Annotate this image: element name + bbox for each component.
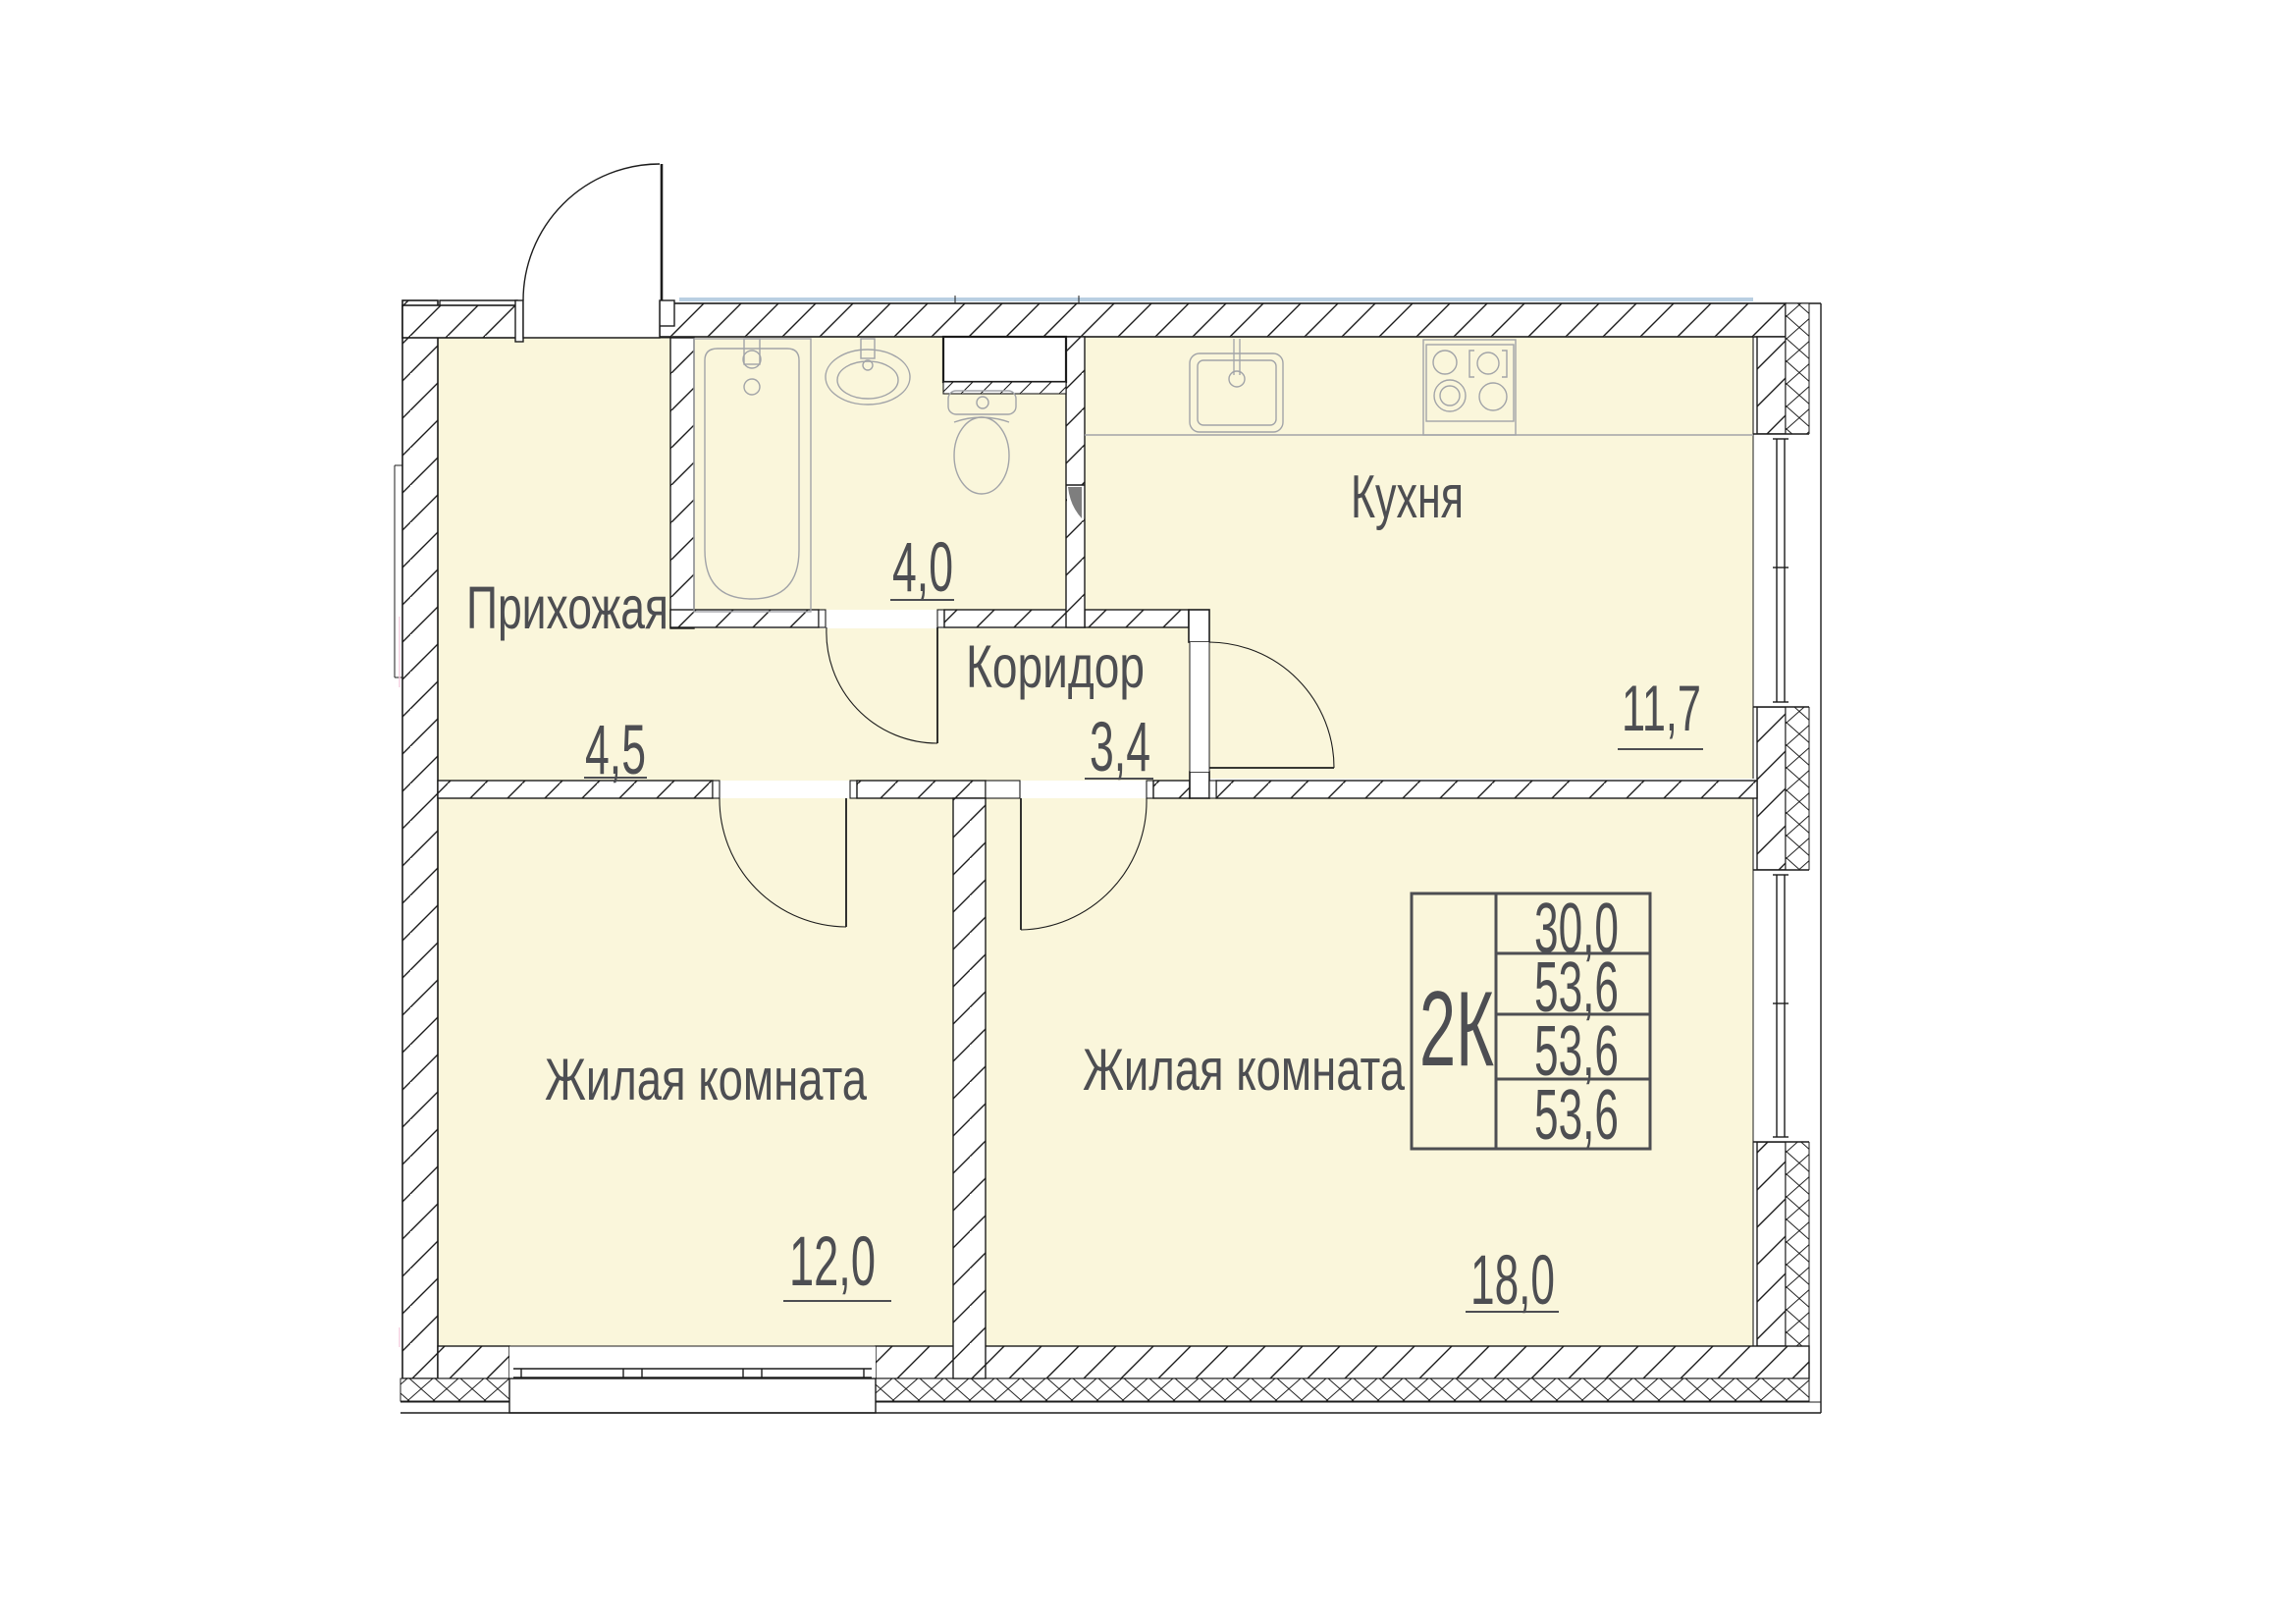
svg-text:Жилая комната: Жилая комната	[545, 1047, 867, 1112]
svg-text:12,0: 12,0	[789, 1223, 876, 1301]
svg-text:Жилая комната: Жилая комната	[1083, 1037, 1405, 1103]
svg-text:Прихожая: Прихожая	[466, 574, 668, 641]
svg-text:Кухня: Кухня	[1351, 463, 1464, 531]
svg-text:4,0: 4,0	[892, 529, 953, 607]
svg-text:2К: 2К	[1419, 969, 1494, 1089]
svg-text:18,0: 18,0	[1470, 1242, 1555, 1320]
svg-text:3,4: 3,4	[1090, 709, 1150, 786]
svg-text:53,6: 53,6	[1534, 1076, 1619, 1155]
svg-text:Коридор: Коридор	[966, 633, 1145, 700]
svg-text:11,7: 11,7	[1622, 672, 1701, 744]
